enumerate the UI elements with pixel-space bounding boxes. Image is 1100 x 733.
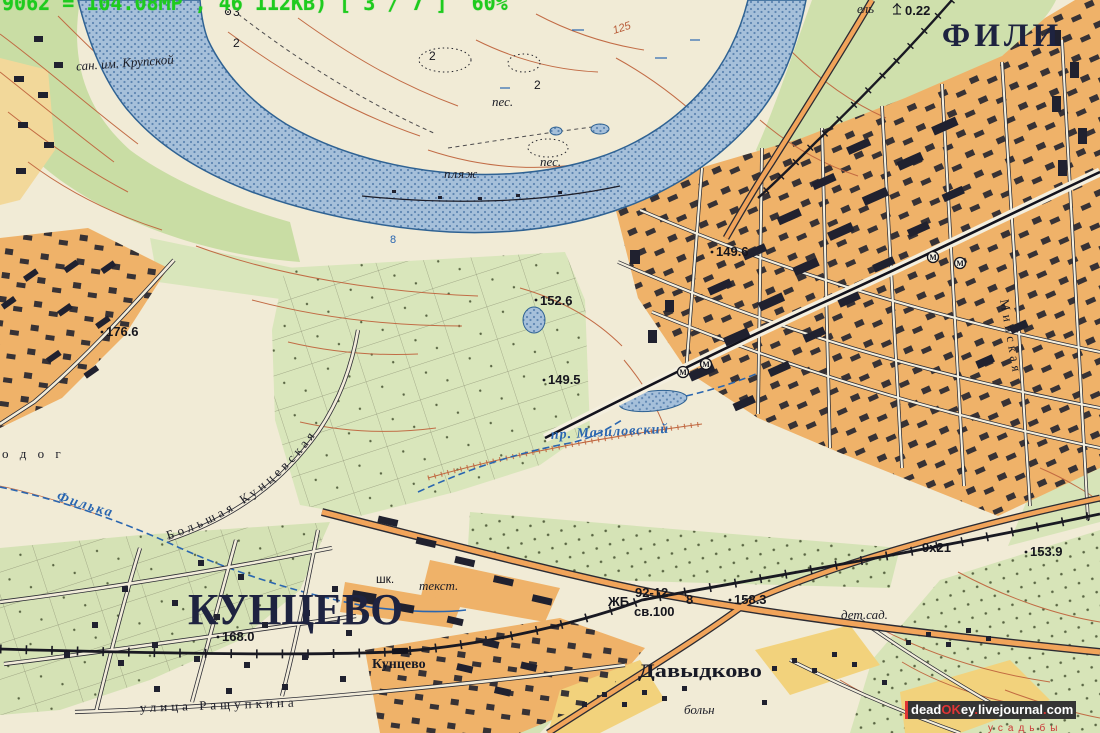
label-fili: ФИЛИ (942, 18, 1062, 54)
viewer-status-text: 9062 = 104.08MP , 46 112KB) [ 3 / 7 ] 60… (2, 0, 508, 15)
elevation-149-6: 149.6 (716, 244, 749, 259)
label-bridge-clearance: св.100 (634, 604, 675, 619)
metro-station-icon: М (955, 258, 966, 269)
map-canvas[interactable]: М М М М ФИЛИ КУНЦЕВО Давыдково сан. им. … (0, 0, 1100, 733)
watermark: deadOKey.livejournal.com (905, 701, 1076, 719)
metro-station-icon: М (701, 359, 712, 370)
elevation-176-6: 176.6 (106, 324, 139, 339)
label-odog-partial: о д о г (2, 446, 65, 461)
label-davydkovo: Давыдково (638, 661, 762, 682)
label-el: ель (857, 1, 874, 16)
elevation-158-3: 158.3 (734, 592, 767, 607)
watermark-journal: livejournal (978, 702, 1043, 717)
elevation-168-0: 168.0 (222, 629, 255, 644)
label-station-kuntsevo: Кунцево (372, 657, 426, 672)
label-plyazh: пляж (444, 166, 478, 181)
metro-station-icon: М (928, 252, 939, 263)
contour-label-2b: 2 (429, 49, 436, 63)
label-pes-1: пес. (540, 154, 561, 169)
label-usadby: усадьбы (988, 722, 1062, 733)
label-detsad: дет.сад. (841, 607, 888, 622)
elevation-153-9: 153.9 (1030, 544, 1063, 559)
contour-label-2c: 2 (534, 78, 541, 92)
elevation-149-5: 149.5 (548, 372, 581, 387)
label-bridge-num: 92-12 (635, 585, 668, 600)
metro-m-label: М (679, 368, 687, 377)
label-road-spec: 9х21 (922, 540, 951, 555)
label-zhb: ЖБ (607, 594, 629, 609)
label-river-depth: 8 (390, 234, 396, 246)
contour-label-2a: 2 (233, 36, 240, 50)
watermark-ey: ey (961, 702, 975, 717)
label-tekstil: текст. (419, 578, 458, 593)
label-kuntsevo: КУНЦЕВО (188, 585, 403, 634)
label-bridge-width: 8 (686, 592, 693, 607)
elevation-152-6: 152.6 (540, 293, 573, 308)
watermark-ok: OK (941, 702, 961, 717)
label-bolnitsa: больн (684, 702, 715, 717)
metro-m-label: М (956, 259, 964, 268)
metro-station-icon: М (678, 367, 689, 378)
metro-m-label: М (702, 360, 710, 369)
watermark-dead: dead (911, 702, 941, 717)
station-kuntsevo-symbol (392, 648, 408, 655)
label-pes-2: пес. (492, 94, 513, 109)
label-shkola: шк. (376, 572, 394, 586)
topographic-map: М М М М ФИЛИ КУНЦЕВО Давыдково сан. им. … (0, 0, 1100, 733)
metro-m-label: М (929, 253, 937, 262)
label-el-height: 0.22 (905, 3, 930, 18)
watermark-com: com (1047, 702, 1074, 717)
